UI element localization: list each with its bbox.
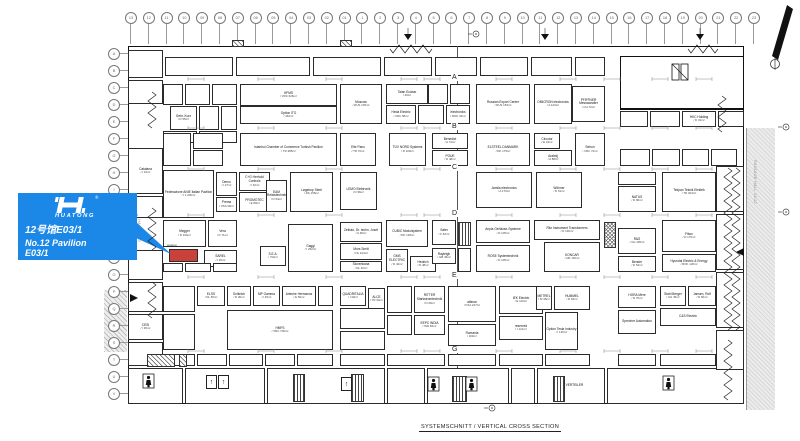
booth-area: / D 104m² <box>178 234 191 237</box>
grid-stem <box>290 22 291 44</box>
booth <box>418 105 444 124</box>
booth-area: / USA 30m² <box>219 205 234 208</box>
callout-line3: E03/1 <box>25 248 133 259</box>
grid-bubble-left: O <box>108 269 120 281</box>
booth-area: / D 96m² <box>631 199 642 202</box>
booth: MP Gamma/ I 45m² <box>253 286 280 306</box>
booth <box>618 172 656 185</box>
aisle-letter-G: G <box>451 346 458 353</box>
booth: Rayleigh/ GB 46m² <box>432 248 456 264</box>
booth <box>199 106 219 130</box>
booth <box>185 84 210 105</box>
grid-stem <box>361 22 362 44</box>
grid-bubble-top: 05 <box>267 12 279 24</box>
booth: HUMMEL/ D 63m² <box>554 286 590 310</box>
booth-area: / RUS 135m² <box>353 104 370 107</box>
booth-area: / TR 34m² <box>370 299 383 302</box>
booth <box>297 354 333 366</box>
booth <box>213 263 237 272</box>
booth-area: / D 48m² <box>444 158 455 161</box>
booth-area: / E 44m² <box>542 141 553 144</box>
booth: alfanar/ KSA 247m² <box>448 286 496 322</box>
grid-bubble-left: T <box>108 354 120 366</box>
aisle-letter-E: E <box>451 272 458 279</box>
booth <box>165 57 233 76</box>
booth-area: / I 136m² <box>556 331 567 334</box>
booth-area: / I 1.200m² <box>182 194 196 197</box>
booth-area: / NL 104m² <box>354 252 368 255</box>
grid-stem <box>148 22 149 44</box>
booth-area: / 40m² <box>403 94 411 97</box>
booth: Istanbul Chamber of Commerce Turkish Pav… <box>240 133 337 166</box>
booth: EEPC INDIA/ IND 84m² <box>414 315 445 335</box>
booth <box>267 368 385 404</box>
booth: Zelisko, Dr. techn. Josef/ A 90m² <box>340 222 382 242</box>
grid-bubble-top: 10 <box>517 12 529 24</box>
booth <box>450 84 470 104</box>
grid-stem <box>753 22 754 44</box>
grid-bubble-left: H <box>108 167 120 179</box>
grid-stem <box>433 22 434 44</box>
grid-bubble-top: 06 <box>250 12 262 24</box>
grid-bubble-left: A <box>108 48 120 60</box>
booth: HKC Holding/ D 31m² <box>682 111 716 127</box>
grid-bubble-top: 2 <box>374 12 386 24</box>
grid-stem <box>486 22 487 44</box>
booth: Vera/ D 71m² <box>208 220 237 247</box>
grid-bubble-top: 15 <box>606 12 618 24</box>
booth-area: / D 54m² <box>271 198 282 201</box>
booth <box>620 149 650 166</box>
grid-stem <box>646 22 647 44</box>
grid-bubble-left: G <box>108 150 120 162</box>
grid-bubble-left: C <box>108 82 120 94</box>
booth-area: / A 170m² <box>498 190 510 193</box>
booth-area: / I 121m² <box>515 328 526 331</box>
grid-bubble-top: 12 <box>552 12 564 24</box>
booth-area: / D 42m² <box>391 263 402 266</box>
booth-area: / D 60m² <box>424 302 435 305</box>
booth <box>458 248 471 272</box>
grid-stem <box>664 22 665 44</box>
grid-stem <box>130 22 131 44</box>
booth-area: / ROK 42m² <box>450 115 465 118</box>
booth <box>340 308 385 329</box>
grid-bubble-left: D <box>108 99 120 111</box>
grid-stem <box>628 22 629 44</box>
grid-stem <box>468 22 469 44</box>
huatong-logo-text: HUATONG <box>25 213 125 219</box>
booth: Catalana/ I 34m² <box>128 148 163 194</box>
grid-bubble-left: B <box>108 65 120 77</box>
booth <box>511 368 535 404</box>
booth: Federazione ANIE Italian Pavilion/ I 1.2… <box>163 170 214 218</box>
grid-bubble-top: 13 <box>570 12 582 24</box>
booth: ROSE Systemtechnik/ D 105m² <box>476 245 530 272</box>
booth-area: / I 36m² <box>141 327 151 330</box>
booth-area: / D 130m² <box>561 230 574 233</box>
booth-area: / D 30m² <box>233 296 244 299</box>
grid-stem <box>717 22 718 44</box>
aisle-letter-A: A <box>451 74 458 81</box>
booth: Jamila electronics/ A 170m² <box>476 172 532 208</box>
booth-area: / A 72m² <box>445 141 456 144</box>
drawing-title-text: SYSTEMSCHNITT / VERTICAL CROSS SECTION <box>419 424 561 432</box>
booth-area: / IND 84m² <box>423 325 437 328</box>
booth-area: / TR 204m² <box>682 192 696 195</box>
booth-area: / VRC 58m² <box>393 115 408 118</box>
grid-bubble-top: 12 <box>143 12 155 24</box>
booth-area: / KSA 247m² <box>464 304 480 307</box>
grid-stem <box>201 22 202 44</box>
booth-area: / D 63m² <box>566 298 577 301</box>
booth <box>427 368 509 404</box>
booth <box>716 166 744 212</box>
booth <box>128 368 183 404</box>
grid-stem <box>611 22 612 44</box>
huatong-logo-icon <box>53 196 91 214</box>
booth: HFMS/ VRC 626m² <box>240 84 337 106</box>
booth <box>193 150 223 166</box>
booth: Gaggi/ I 252m² <box>288 224 333 272</box>
booth <box>718 111 744 127</box>
stair-hatch <box>458 222 471 246</box>
booth: electronics/ ROK 42m² <box>446 105 470 124</box>
grid-bubble-top: 10 <box>178 12 190 24</box>
booth-area: / I 45m² <box>262 296 272 299</box>
booth: TÜV NORD Systems/ D 100m² <box>389 133 426 166</box>
grid-bubble-top: 20 <box>695 12 707 24</box>
booth: Aralmij/ A 88m² <box>534 150 572 166</box>
booth-area: / D 48m² <box>417 264 428 267</box>
booth-area: / D 176m² <box>683 236 696 239</box>
grid-bubble-top: 01 <box>339 12 351 24</box>
aisle-letter-C: C <box>451 164 458 171</box>
grid-bubble-top: 8 <box>481 12 493 24</box>
booth: CESI/ I 36m² <box>128 314 163 340</box>
booth: Option ITO/ 162m² <box>240 106 337 124</box>
highlight-booth-label: Huatong <box>167 244 177 247</box>
booth: Arteche Hermanos/ E 50m² <box>282 286 316 306</box>
booth: Tekpan Teknik Elektrik/ TR 204m² <box>662 172 716 212</box>
grid-bubble-top: 11 <box>161 12 173 24</box>
grid-bubble-top: 03 <box>303 12 315 24</box>
grid-stem <box>166 22 167 44</box>
booth-area: / TR 70m² <box>352 150 365 153</box>
booth-area: / A 90m² <box>356 232 367 235</box>
booth <box>163 314 195 350</box>
booth: Moscow/ RUS 135m² <box>340 84 382 124</box>
booth <box>212 84 237 105</box>
booth-area: / VRC 626m² <box>280 95 297 98</box>
grid-bubble-top: 14 <box>588 12 600 24</box>
booth-area: / DK 175m² <box>496 150 511 153</box>
booth: EAM Relaistechnik/ D 54m² <box>266 180 287 212</box>
booth: HORA Mere/ D 70m² <box>618 286 656 308</box>
booth <box>265 354 295 366</box>
booth-area: / I 34m² <box>141 171 151 174</box>
booth <box>545 354 590 366</box>
grid-bubble-left: F <box>108 133 120 145</box>
booth <box>163 286 195 312</box>
huatong-logo: ® HUATONG <box>25 196 133 222</box>
grid-stem <box>593 22 594 44</box>
grid-bubble-left: V <box>108 388 120 400</box>
booth <box>716 214 744 270</box>
booth-area: / I 40m² <box>348 296 358 299</box>
booth: reserved/ I 121m² <box>499 316 543 340</box>
booth: PFIFFNER Messwandler/ CH 72m² <box>572 86 605 122</box>
booth: Fibox/ D 176m² <box>662 220 716 252</box>
grid-bubble-top: 04 <box>285 12 297 24</box>
booth-area: / HR 130m² <box>565 257 580 260</box>
grid-bubble-top: 21 <box>712 12 724 24</box>
stair-hatch <box>293 374 305 402</box>
grid-bubble-top: 18 <box>659 12 671 24</box>
booth-area: / D 105m² <box>497 232 510 235</box>
huatong-callout: ® HUATONG 12号馆E03/1 No.12 Pavilion E03/1 <box>18 193 137 260</box>
booth: ELSS/ NL 50m² <box>197 286 225 306</box>
booth: Safer/ F 52m² <box>432 220 456 245</box>
exit-arrow-icon: ↑ <box>341 377 352 391</box>
booth <box>652 149 680 166</box>
booth: KONCAR/ HR 130m² <box>544 242 600 272</box>
grid-bubble-top: 9 <box>499 12 511 24</box>
grid-stem <box>450 22 451 44</box>
grid-stem <box>308 22 309 44</box>
booth: Prema/ USA 30m² <box>216 197 237 212</box>
booth-area: / D 60m² <box>696 296 707 299</box>
booth-area: / VRC 706m² <box>272 330 289 333</box>
grid-bubble-top: 07 <box>232 12 244 24</box>
booth: Mors Smitt/ NL 104m² <box>340 243 382 260</box>
booth: ELSTEEL DANMARK/ DK 175m² <box>476 133 530 166</box>
grid-bubble-top: 17 <box>641 12 653 24</box>
booth <box>318 286 333 306</box>
booth-area: / D 96m² <box>353 191 364 194</box>
grid-bubble-left: Q <box>108 303 120 315</box>
booth <box>428 84 448 104</box>
booth-area: / CH 45m² <box>666 296 679 299</box>
booth: Sebon/ VRC 72m² <box>575 133 605 166</box>
booth-area: / 100m² <box>467 335 477 338</box>
booth <box>313 57 381 76</box>
grid-bubble-top: 11 <box>534 12 546 24</box>
booth-area: / CH 72m² <box>582 106 595 109</box>
booth-area: / D 105m² <box>497 259 510 262</box>
booth <box>660 354 716 366</box>
booth: NATUS/ D 96m² <box>618 186 656 212</box>
booth-area: / NL 40m² <box>355 267 368 270</box>
booth: ALCE/ TR 34m² <box>368 288 385 310</box>
booth: Heda Electric/ VRC 58m² <box>386 105 416 124</box>
stair-hatch <box>179 354 187 367</box>
passage-label-right: PASSAGE HALL 11/12 <box>753 160 757 204</box>
booth-area: / DK 130m² <box>400 234 415 237</box>
booth <box>448 354 496 366</box>
booth-area: / CH 105m² <box>630 241 645 244</box>
grid-bubble-top: 08 <box>214 12 226 24</box>
drawing-title: SYSTEMSCHNITT / VERTICAL CROSS SECTION <box>395 415 585 433</box>
grid-stem <box>326 22 327 44</box>
grid-bubble-left: R <box>108 320 120 332</box>
grid-stem <box>522 22 523 44</box>
floorplan-page: PASSAGE HALL 11/12 PASSAGE HALL 12/13 HF… <box>0 0 800 441</box>
booth: RITTER Starkstromtechnik/ D 60m² <box>414 286 445 313</box>
booth: QUADRITALIA/ I 40m² <box>340 286 366 306</box>
booth: Elte Pano/ TR 70m² <box>340 133 376 166</box>
booth <box>387 368 425 404</box>
booth-area: / I 54m² <box>268 256 278 259</box>
booth: Benedict/ A 72m² <box>432 133 468 149</box>
booth <box>340 354 385 366</box>
grid-stem <box>682 22 683 44</box>
booth <box>607 368 744 404</box>
booth: Circutor/ E 44m² <box>534 133 560 149</box>
grid-bubble-top: 4 <box>410 12 422 24</box>
booth-area: / D 55m² <box>178 118 189 121</box>
stair-hatch <box>553 376 565 402</box>
grid-bubble-top: 13 <box>125 12 137 24</box>
grid-stem <box>272 22 273 44</box>
stair-hatch <box>604 222 616 248</box>
booth-area: / D 54m² <box>631 264 642 267</box>
booth: Slovenkana/ NL 40m² <box>340 261 382 272</box>
booth: CUBIC Modulsystem/ DK 130m² <box>386 220 428 247</box>
booth: Schleich/ D 30m² <box>227 286 251 306</box>
booth-area: / D 70m² <box>631 297 642 300</box>
booth <box>531 57 572 76</box>
booth: Løgstrup Steel/ DK 165m² <box>290 172 333 212</box>
stair-hatch <box>351 374 364 402</box>
booth-area: / D 31m² <box>693 119 704 122</box>
booth: Russian Export Center/ RUS 153m² <box>476 84 530 124</box>
booth <box>163 84 183 105</box>
booth-area: / E 110m² <box>515 300 527 303</box>
grid-stem <box>219 22 220 44</box>
grid-bubble-top: 22 <box>730 12 742 24</box>
booth: C&S Electric <box>660 308 716 326</box>
booth <box>221 106 237 130</box>
grid-stem <box>379 22 380 44</box>
booth-area: / VRC 72m² <box>582 150 597 153</box>
booth: Taian Ecobar/ 40m² <box>386 84 428 104</box>
booth <box>682 149 709 166</box>
grid-stem <box>504 22 505 44</box>
booth <box>197 354 227 366</box>
grid-bubble-top: 7 <box>463 12 475 24</box>
booth: Gebr. Kurz/ D 55m² <box>170 106 197 130</box>
booth <box>716 272 744 328</box>
booth <box>236 57 310 76</box>
booth: Romania/ 100m² <box>448 324 496 346</box>
registered-mark: ® <box>95 195 98 200</box>
booth-area: / GB 46m² <box>437 256 450 259</box>
aisle-letter-B: B <box>451 123 458 130</box>
stair-hatch <box>232 40 244 47</box>
booth: OMICRON electronics/ A 123m² <box>534 84 572 124</box>
exit-arrow-icon: ↑ <box>218 375 229 389</box>
booth: Sprecher Automation <box>618 310 656 334</box>
booth: Bender/ D 54m² <box>618 256 656 272</box>
booth <box>193 133 223 149</box>
booth: Demo/ I 27m² <box>216 172 237 196</box>
booth <box>229 354 263 366</box>
grid-bubble-top: 23 <box>748 12 760 24</box>
exit-arrow-icon: ↑ <box>206 375 217 389</box>
booth <box>620 111 648 127</box>
booth-name: C&S Electric <box>679 315 697 319</box>
booth: GMS ELECTRIC/ D 42m² <box>386 249 408 272</box>
booth: Wöhner/ D 51m² <box>536 172 582 208</box>
booth-area: / A 88m² <box>548 158 559 161</box>
booth <box>163 263 183 272</box>
booth: Hyundai Electric & Energy/ ROK 126m² <box>662 254 716 272</box>
grid-stem <box>700 22 701 44</box>
booth <box>387 354 445 366</box>
booth-area: / DK 165m² <box>304 192 319 195</box>
callout-line2: No.12 Pavilion <box>25 238 133 249</box>
booth <box>163 133 191 166</box>
grid-stem <box>557 22 558 44</box>
booth <box>650 111 680 127</box>
booth-area: / TR 385m² <box>281 150 295 153</box>
booth: POUE/ D 48m² <box>432 150 468 166</box>
booth <box>128 282 163 312</box>
booth-area: / 162m² <box>284 115 294 118</box>
booth <box>384 57 432 76</box>
grid-stem <box>397 22 398 44</box>
booth <box>716 330 744 370</box>
grid-bubble-top: 3 <box>392 12 404 24</box>
aisle-letter-D: D <box>451 210 458 217</box>
grid-bubble-left: E <box>108 116 120 128</box>
booth-area: / D 51m² <box>553 190 564 193</box>
booth <box>387 315 412 335</box>
stair-hatch <box>452 376 467 402</box>
booth: Jansen, Rolf/ D 60m² <box>688 286 716 306</box>
booth: Anpla Gehäuse-Systeme/ D 105m² <box>476 220 530 243</box>
booth-area: / NL 50m² <box>205 296 218 299</box>
booth <box>499 354 543 366</box>
callout-line1: 12号馆E03/1 <box>25 225 133 238</box>
booth-name: Sprecher Automation <box>622 320 652 324</box>
booth <box>128 50 163 78</box>
grid-stem <box>539 22 540 44</box>
grid-bubble-top: 09 <box>196 12 208 24</box>
stair-hatch <box>340 40 352 47</box>
booth <box>387 286 412 313</box>
booth-area: / E 80m² <box>249 202 260 205</box>
passage-strip-right <box>746 128 775 410</box>
booth-area: / D 71m² <box>217 234 228 237</box>
booth <box>711 149 737 166</box>
grid-bubble-left: P <box>108 286 120 298</box>
grid-bubble-top: 1 <box>356 12 368 24</box>
booth-area: / RUS 153m² <box>495 104 512 107</box>
grid-bubble-top: 02 <box>321 12 333 24</box>
highlighted-booth-e03-1 <box>169 249 198 262</box>
booth-area: / SI 35m² <box>538 298 550 301</box>
booth-area: / A 123m² <box>547 104 559 107</box>
booth-area: / ROK 126m² <box>681 263 698 266</box>
empty-hall-area <box>620 56 744 110</box>
booth: Megger/ D 104m² <box>163 220 206 247</box>
booth-area: / I 40m² <box>250 184 260 187</box>
booth <box>575 57 605 76</box>
grid-stem <box>415 22 416 44</box>
grid-bubble-left: S <box>108 337 120 349</box>
